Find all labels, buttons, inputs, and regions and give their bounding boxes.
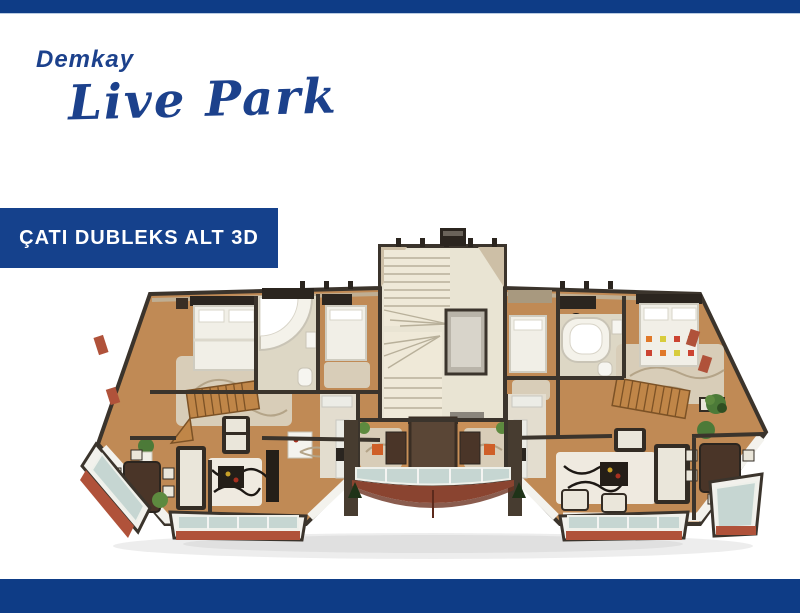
- desk: [460, 432, 480, 464]
- stairs-lower: [384, 332, 442, 418]
- table-decor: [616, 474, 621, 479]
- stairs-upper-floor: [384, 250, 450, 326]
- sofa-cushions: [180, 450, 202, 506]
- bush: [152, 492, 168, 508]
- orange-chair: [372, 444, 383, 455]
- desk: [560, 296, 596, 309]
- desk: [386, 432, 406, 464]
- rug: [324, 362, 370, 388]
- terracotta-base: [566, 531, 682, 540]
- chair: [163, 468, 174, 479]
- sofa-cushions: [658, 448, 685, 500]
- glass-railing: [568, 516, 680, 529]
- cabinet: [262, 288, 314, 299]
- wardrobe: [508, 290, 552, 303]
- bedroom-left-mid: [322, 294, 370, 388]
- floor-plan-svg: [0, 0, 800, 613]
- counter: [512, 396, 542, 407]
- toilet: [298, 368, 312, 386]
- desk: [322, 294, 352, 305]
- table-decor: [226, 472, 231, 477]
- elevator-door: [451, 317, 481, 367]
- elevator: [446, 310, 486, 374]
- terracotta-base: [176, 531, 300, 540]
- chimney: [440, 228, 466, 246]
- pillow: [199, 310, 224, 322]
- coffee-table: [600, 462, 628, 486]
- balcony-bottom-left: [170, 512, 306, 540]
- bottom-accent-bar: [0, 579, 800, 613]
- table-decor: [234, 478, 239, 483]
- bathtub-basin: [570, 324, 602, 354]
- coffee-table: [218, 466, 244, 488]
- table-decor: [608, 468, 613, 473]
- lounge-chair: [602, 494, 626, 512]
- balcony-bottom-right: [560, 512, 688, 540]
- tv-unit: [266, 450, 279, 502]
- armchair-cushion: [226, 419, 246, 434]
- orange-chair: [484, 444, 495, 455]
- headboard: [636, 294, 702, 304]
- glass-railing: [356, 468, 510, 485]
- headboard: [190, 296, 262, 306]
- pillow: [229, 310, 254, 322]
- stairs-upper: [384, 250, 450, 326]
- pillow: [672, 308, 696, 320]
- chair: [131, 450, 142, 460]
- pillow: [330, 310, 362, 320]
- nightstand: [176, 298, 188, 309]
- armchair-cushion: [226, 435, 246, 450]
- pillow: [514, 320, 542, 330]
- balcony-right-corner: [710, 474, 762, 536]
- sink: [306, 332, 316, 348]
- counter: [322, 396, 352, 407]
- sink: [612, 320, 622, 334]
- lounge-chair: [562, 490, 588, 510]
- chair: [743, 450, 754, 461]
- stairwell-core: [380, 246, 505, 422]
- page: Demkay Live Park ÇATI DUBLEKS ALT 3D: [0, 0, 800, 613]
- bathroom-left: [258, 288, 318, 392]
- floor-plan-render: [0, 0, 800, 613]
- pillow: [644, 308, 668, 320]
- armchair-cushion: [618, 431, 642, 448]
- glass-railing: [716, 482, 756, 528]
- toilet: [598, 362, 612, 376]
- terracotta-base: [716, 526, 756, 535]
- bathroom-right: [558, 314, 624, 378]
